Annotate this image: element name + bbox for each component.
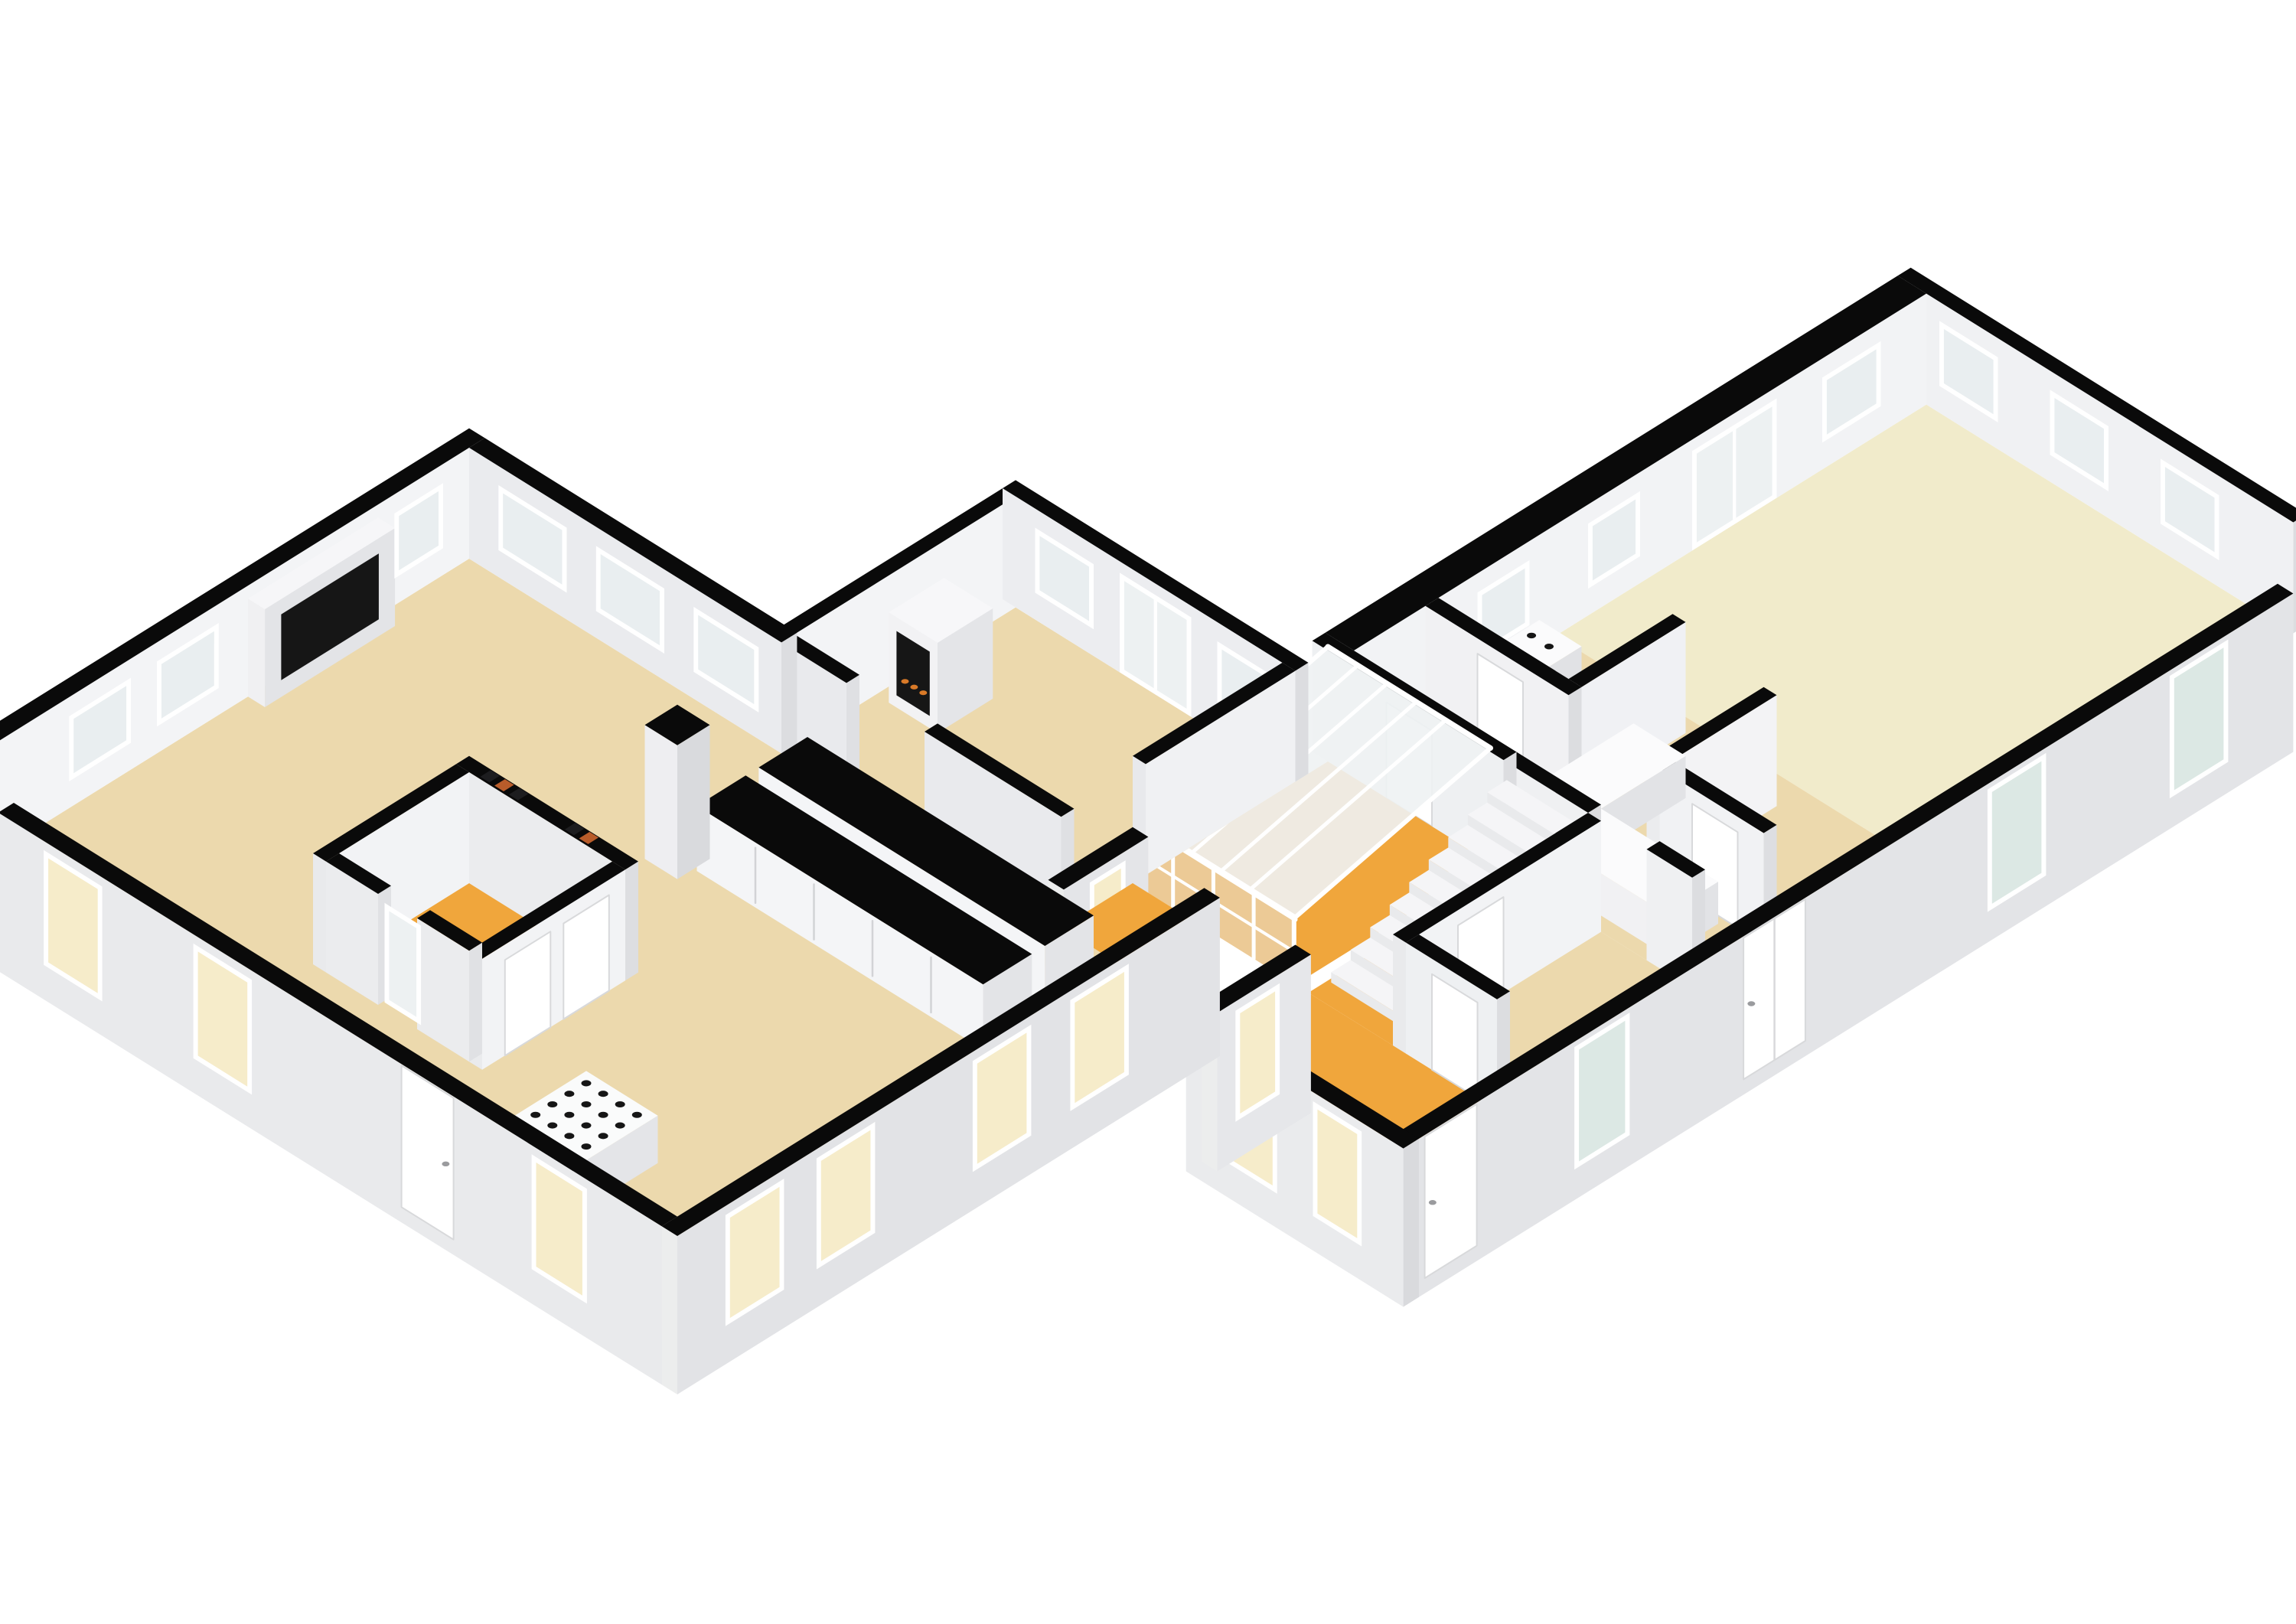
exterior-double-door-seam — [1773, 918, 1776, 1061]
right-wing-north-wall — [2293, 514, 2296, 634]
wc-south-wall — [469, 943, 482, 1062]
stove-burners — [615, 1123, 625, 1129]
stove-burners — [564, 1133, 574, 1139]
stove-burners — [582, 1143, 592, 1150]
stove-burners — [598, 1112, 608, 1118]
wc-north-wall — [625, 862, 638, 981]
door-handle — [1429, 1200, 1437, 1205]
stove-burners — [615, 1101, 625, 1107]
stove-burners — [564, 1091, 574, 1097]
washer-knobs — [1527, 633, 1536, 638]
stove-burners — [598, 1133, 608, 1139]
stove-burners — [547, 1101, 557, 1107]
floorplan-3d-svg — [0, 0, 2296, 1624]
chimney-column — [645, 725, 678, 879]
stove-burners — [632, 1112, 642, 1118]
wc-west-wall — [313, 853, 326, 973]
door-handle — [442, 1162, 449, 1166]
stair-partition-wall — [1393, 934, 1406, 1054]
fire-glow — [902, 679, 909, 683]
left-wing-northeast-wall — [781, 633, 797, 754]
floorplan-3d-view — [0, 0, 2296, 1624]
wc-glass-door-glass — [389, 911, 416, 1017]
chimney-column — [677, 725, 710, 879]
right-wing-southwest-wall — [1404, 1139, 1419, 1307]
stove-burners — [530, 1112, 540, 1118]
stove-burners — [582, 1080, 592, 1086]
tv-media-unit — [248, 598, 265, 707]
washer-knobs — [1544, 644, 1554, 649]
left-wing-southeast-wall — [662, 1226, 677, 1394]
stove-burners — [582, 1123, 592, 1129]
french-door-mullion — [1154, 599, 1157, 690]
fire-glow — [919, 690, 927, 695]
fire-glow — [910, 685, 918, 690]
stove-burners — [582, 1101, 592, 1107]
stove-burners — [547, 1123, 557, 1129]
door-handle — [1747, 1001, 1755, 1006]
french-door-mullion — [1733, 429, 1736, 520]
dining-north-wall — [1296, 663, 1309, 782]
stove-burners — [564, 1112, 574, 1118]
stove-burners — [598, 1091, 608, 1097]
